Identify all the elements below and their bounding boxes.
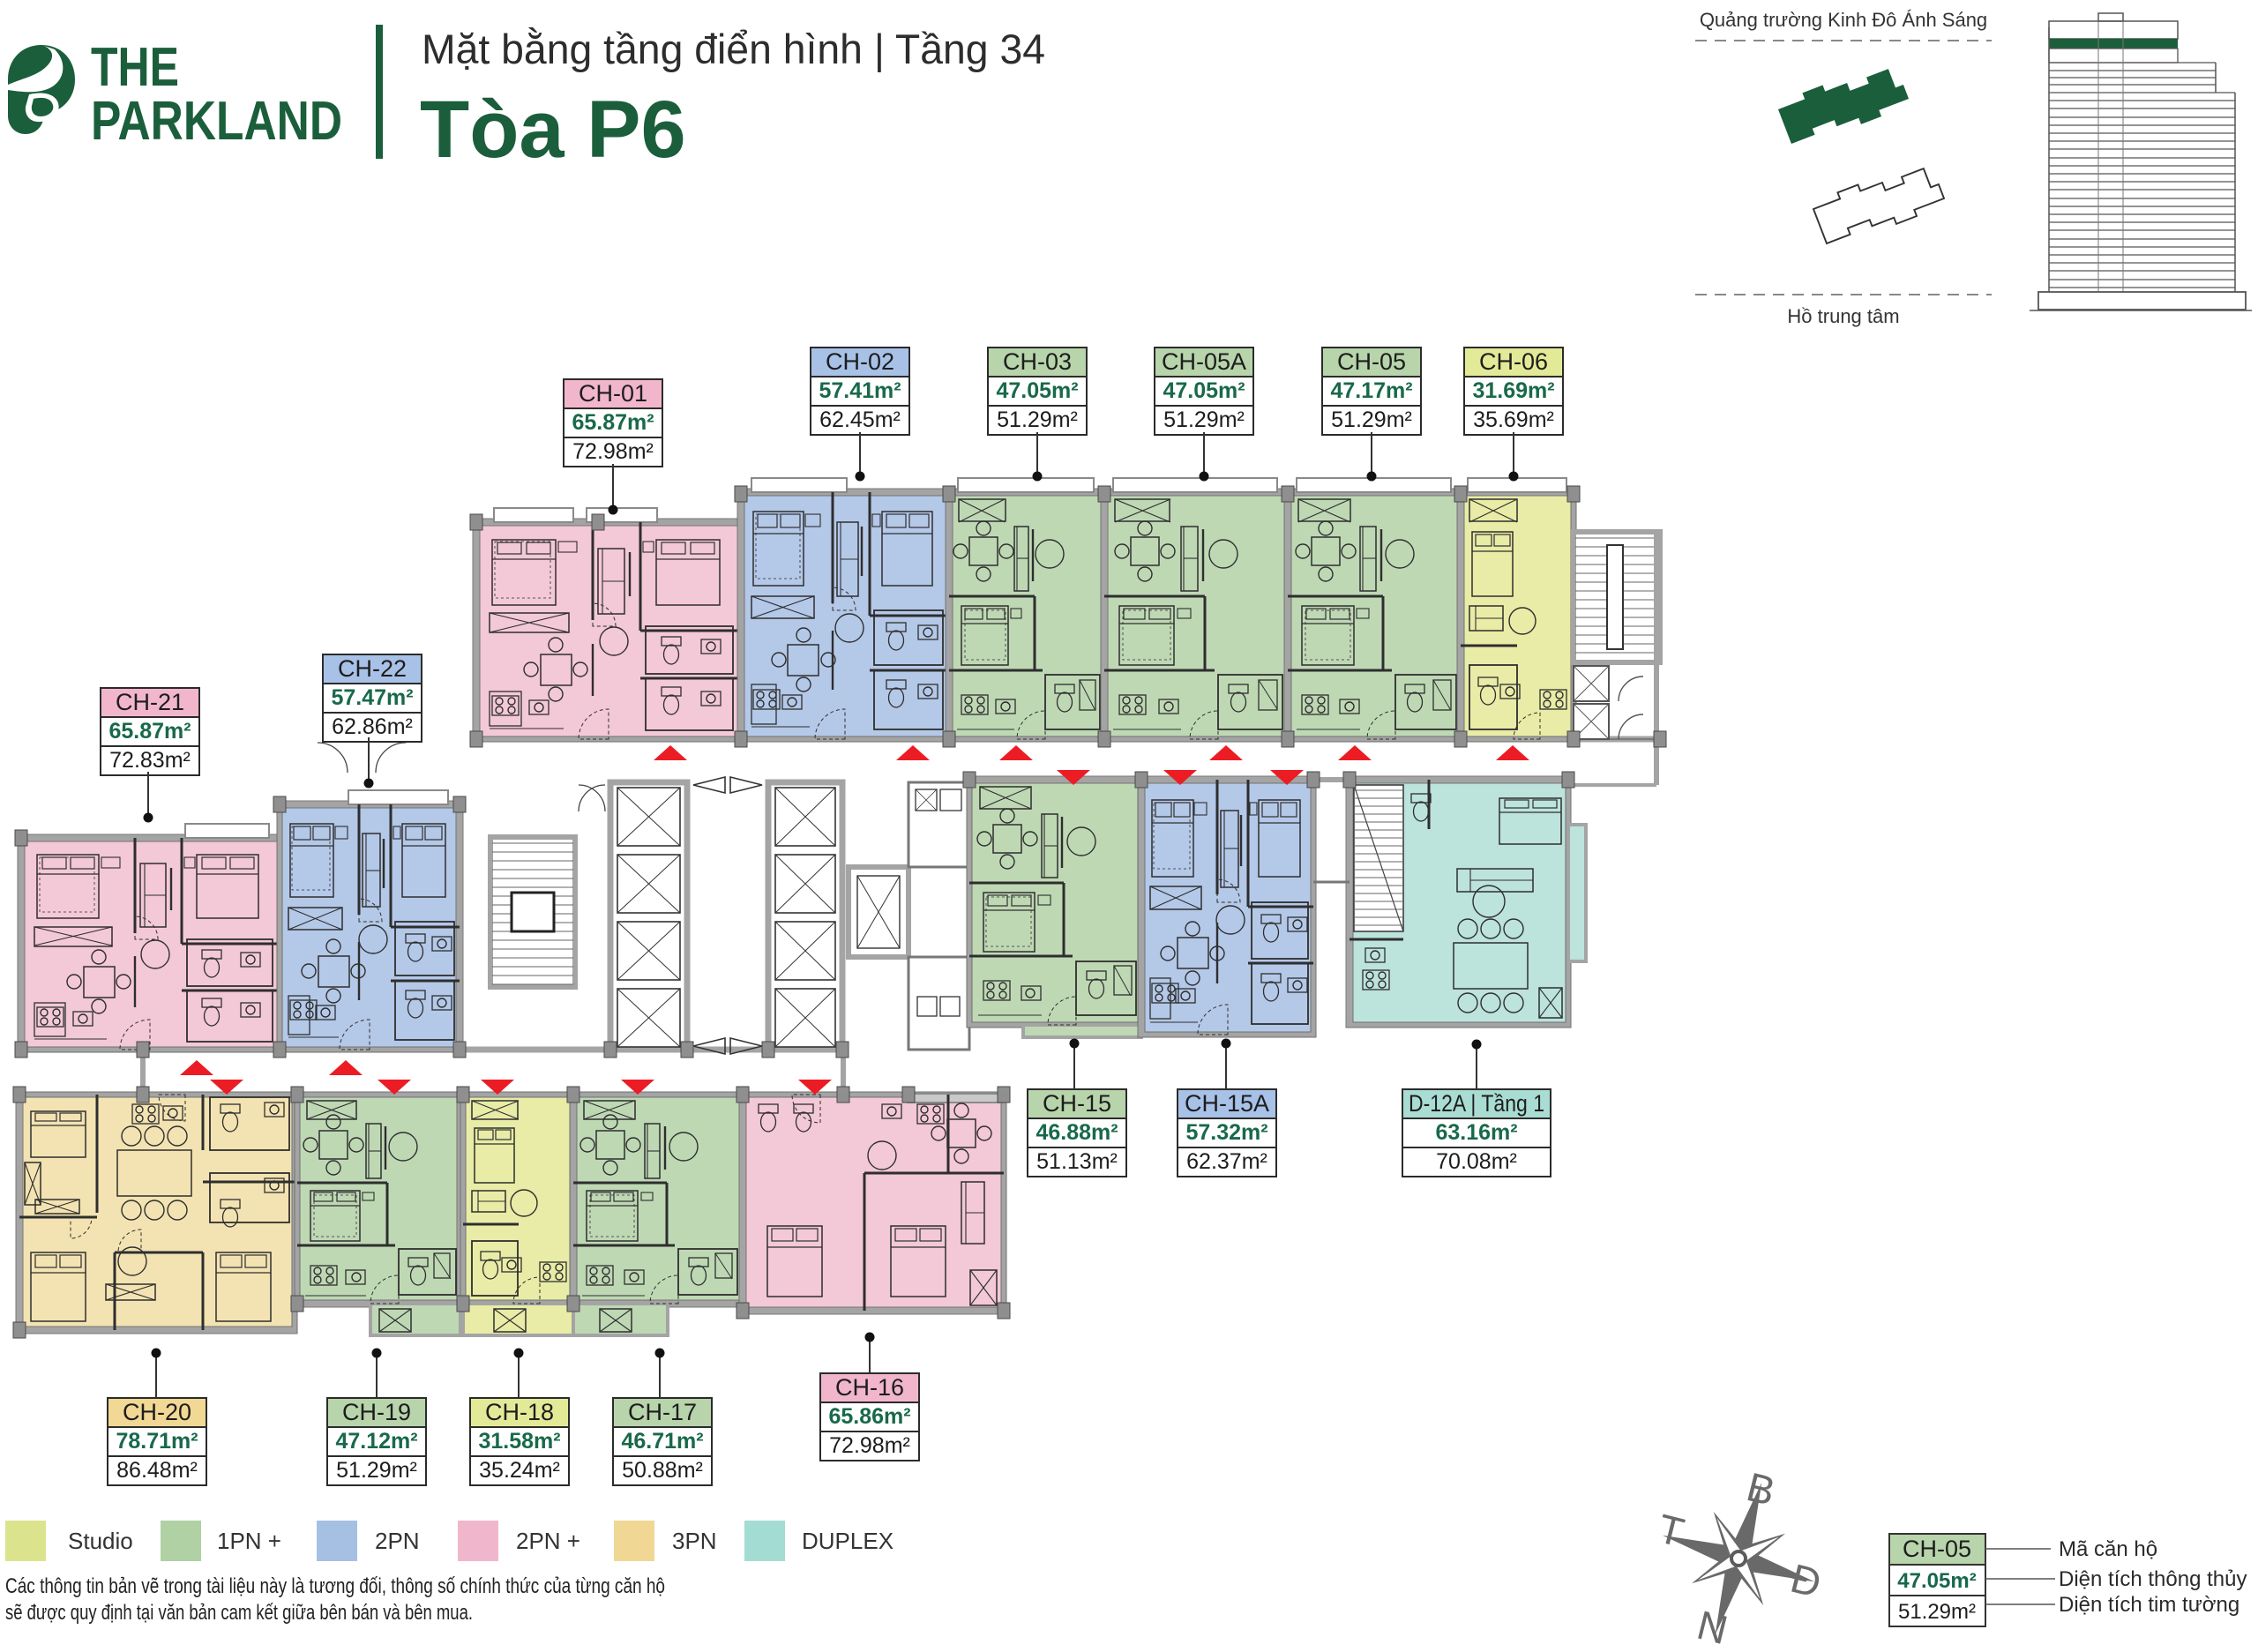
svg-text:sẽ được quy định tại văn bản c: sẽ được quy định tại văn bản cam kết giữ… <box>5 1601 473 1625</box>
svg-text:1PN +: 1PN + <box>217 1528 281 1554</box>
svg-text:Tòa P6: Tòa P6 <box>420 85 686 175</box>
svg-text:Quảng trường Kinh Đô Ánh Sáng: Quảng trường Kinh Đô Ánh Sáng <box>1700 9 1987 31</box>
svg-text:Hồ trung tâm: Hồ trung tâm <box>1787 305 1899 327</box>
svg-text:D-12A | Tầng 1: D-12A | Tầng 1 <box>1409 1090 1544 1117</box>
svg-text:31.69m²: 31.69m² <box>1472 378 1554 403</box>
svg-text:35.69m²: 35.69m² <box>1473 407 1554 432</box>
svg-text:CH-20: CH-20 <box>123 1399 191 1425</box>
svg-text:62.37m²: 62.37m² <box>1186 1149 1267 1174</box>
svg-text:70.08m²: 70.08m² <box>1436 1149 1517 1174</box>
svg-text:CH-17: CH-17 <box>628 1399 697 1425</box>
svg-text:2PN: 2PN <box>375 1528 420 1554</box>
svg-text:CH-22: CH-22 <box>338 655 407 682</box>
svg-text:CH-06: CH-06 <box>1479 348 1548 375</box>
svg-text:Các thông tin bản vẽ trong tài: Các thông tin bản vẽ trong tài liệu này … <box>5 1574 665 1598</box>
svg-text:CH-15: CH-15 <box>1043 1090 1111 1117</box>
svg-text:65.87m²: 65.87m² <box>108 719 191 744</box>
svg-text:Diện tích tim tường: Diện tích tim tường <box>2059 1593 2239 1617</box>
svg-text:63.16m²: 63.16m² <box>1435 1120 1517 1145</box>
svg-text:57.32m²: 57.32m² <box>1185 1120 1267 1145</box>
svg-text:CH-21: CH-21 <box>116 689 184 715</box>
svg-text:THE: THE <box>91 37 179 98</box>
svg-text:50.88m²: 50.88m² <box>622 1458 703 1483</box>
svg-text:CH-05A: CH-05A <box>1162 348 1246 375</box>
svg-text:72.98m²: 72.98m² <box>829 1433 910 1458</box>
svg-text:51.29m²: 51.29m² <box>1898 1600 1976 1624</box>
svg-text:PARKLAND: PARKLAND <box>91 91 342 152</box>
svg-text:DUPLEX: DUPLEX <box>802 1528 893 1554</box>
svg-text:3PN: 3PN <box>672 1528 717 1554</box>
svg-text:47.05m²: 47.05m² <box>1897 1569 1976 1593</box>
svg-text:47.12m²: 47.12m² <box>335 1429 417 1454</box>
svg-text:CH-05: CH-05 <box>1337 348 1406 375</box>
svg-text:47.17m²: 47.17m² <box>1330 378 1412 403</box>
svg-text:CH-16: CH-16 <box>835 1374 904 1401</box>
svg-text:72.98m²: 72.98m² <box>572 439 654 464</box>
svg-text:51.13m²: 51.13m² <box>1036 1149 1118 1174</box>
svg-text:72.83m²: 72.83m² <box>109 748 191 773</box>
svg-text:Mã căn hộ: Mã căn hộ <box>2059 1537 2157 1561</box>
svg-text:78.71m²: 78.71m² <box>116 1429 198 1454</box>
svg-text:51.29m²: 51.29m² <box>336 1458 417 1483</box>
svg-text:Mặt bằng tầng điển hình | Tầng: Mặt bằng tầng điển hình | Tầng 34 <box>422 26 1045 72</box>
svg-text:CH-18: CH-18 <box>485 1399 554 1425</box>
svg-text:CH-15A: CH-15A <box>1185 1090 1269 1117</box>
svg-text:62.45m²: 62.45m² <box>819 407 901 432</box>
svg-text:86.48m²: 86.48m² <box>116 1458 198 1483</box>
svg-text:65.86m²: 65.86m² <box>828 1404 910 1429</box>
svg-text:CH-03: CH-03 <box>1003 348 1072 375</box>
svg-text:62.86m²: 62.86m² <box>332 714 413 739</box>
svg-text:51.29m²: 51.29m² <box>1163 407 1245 432</box>
svg-text:31.58m²: 31.58m² <box>478 1429 560 1454</box>
svg-text:51.29m²: 51.29m² <box>997 407 1078 432</box>
svg-text:47.05m²: 47.05m² <box>996 378 1078 403</box>
svg-text:46.88m²: 46.88m² <box>1036 1120 1118 1145</box>
svg-text:65.87m²: 65.87m² <box>572 410 654 435</box>
svg-text:CH-19: CH-19 <box>342 1399 411 1425</box>
svg-text:51.29m²: 51.29m² <box>1331 407 1412 432</box>
svg-text:CH-02: CH-02 <box>826 348 894 375</box>
svg-text:CH-01: CH-01 <box>579 380 647 407</box>
svg-text:57.41m²: 57.41m² <box>819 378 901 403</box>
svg-text:57.47m²: 57.47m² <box>331 685 413 710</box>
svg-text:Studio: Studio <box>68 1528 133 1554</box>
svg-text:47.05m²: 47.05m² <box>1163 378 1245 403</box>
svg-text:35.24m²: 35.24m² <box>479 1458 560 1483</box>
svg-text:46.71m²: 46.71m² <box>621 1429 703 1454</box>
svg-text:CH-05: CH-05 <box>1903 1536 1971 1562</box>
svg-text:2PN +: 2PN + <box>516 1528 580 1554</box>
svg-text:Diện tích thông thủy: Diện tích thông thủy <box>2059 1567 2247 1591</box>
